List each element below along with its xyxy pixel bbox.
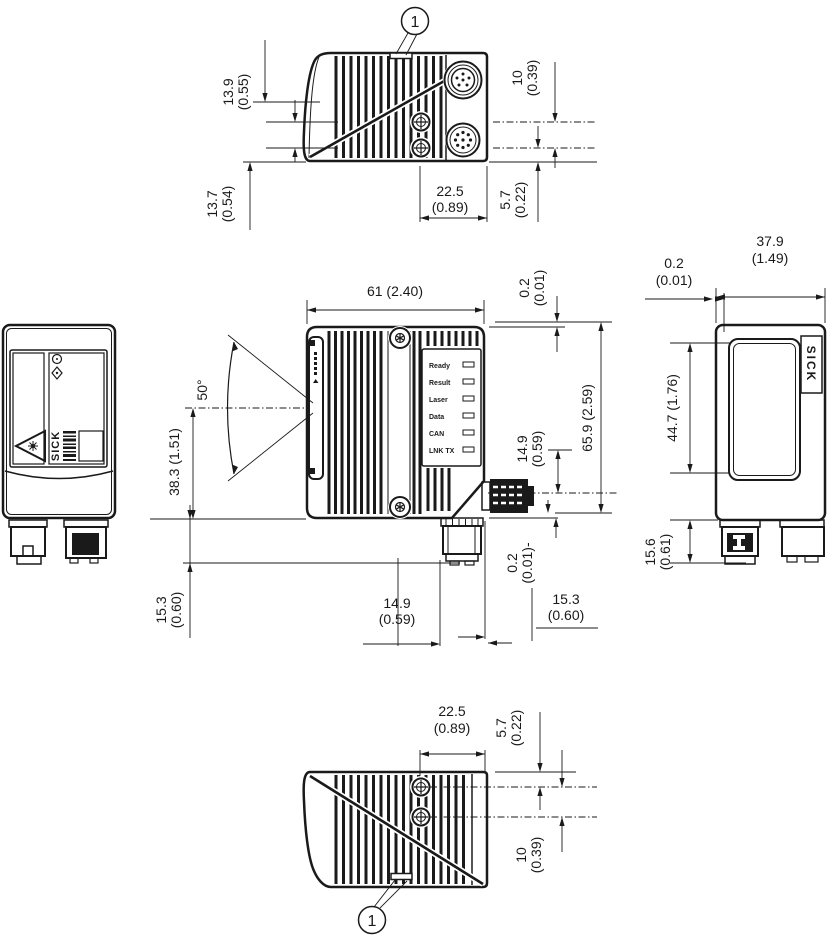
front-view-side-connector (482, 479, 534, 513)
dim-0-2-front-bottom-mm: 0.2 (504, 553, 520, 573)
dim-65-9-label: 65.9 (2.59) (579, 384, 595, 452)
dim-38-3-label: 38.3 (1.51) (166, 428, 182, 496)
dim-22-5-bottom-in: (0.89) (434, 720, 471, 736)
dim-13-7-mm: 13.7 (204, 190, 220, 217)
dim-14-9-right-in: (0.59) (529, 431, 545, 468)
dim-15-3-bottom-mm: 15.3 (552, 591, 579, 607)
dim-0-2-front-bottom-in: (0.01)- (519, 542, 535, 584)
dim-37-9-mm: 37.9 (756, 233, 783, 249)
top-view-connector-m12-female (445, 122, 481, 158)
right-view-window (729, 339, 800, 480)
dim-22-5-bottom-mm: 22.5 (438, 703, 465, 719)
left-view-connector-b (64, 520, 108, 563)
dim-14-9-right-mm: 14.9 (514, 435, 530, 462)
dim-15-3-left-in: (0.60) (168, 592, 184, 629)
bottom-view (304, 772, 487, 887)
bottom-view-mount-slot (391, 874, 412, 880)
dim-5-7-top-mm: 5.7 (497, 190, 513, 210)
led-label-laser: Laser (429, 397, 448, 404)
dim-10-bottom-mm: 10 (513, 847, 529, 863)
callout-1-top: 1 (396, 8, 429, 56)
dim-14-9-bottom-in: (0.59) (379, 611, 416, 627)
front-view-led-panel: Ready Result Laser Data CAN LNK TX (422, 349, 481, 466)
top-view-screw-upper (410, 111, 432, 133)
dim-0-2-front-top-mm: 0.2 (516, 278, 532, 298)
top-view-dimensions: 13.9 (0.55) 13.7 (0.54) 10 (0.39) 5.7 (0… (204, 40, 597, 230)
right-view-connector-a (720, 520, 760, 564)
laser-warning-icon (16, 431, 45, 461)
top-view-mount-slot (390, 53, 412, 59)
dim-10-top-mm: 10 (509, 70, 525, 86)
top-view-connector-m12-male (443, 60, 483, 100)
led-label-result: Result (429, 380, 451, 387)
dim-5-7-top-in: (0.22) (512, 182, 528, 219)
right-view-connector-b (780, 520, 824, 562)
dim-14-9-bottom-mm: 14.9 (383, 595, 410, 611)
dim-22-5-top-mm: 22.5 (436, 183, 463, 199)
bottom-view-screw-upper (410, 776, 432, 798)
certification-icons (52, 355, 62, 380)
dim-0-2-right-in: (0.01) (656, 272, 693, 288)
front-view-screw-top (388, 326, 412, 350)
dim-10-top-in: (0.39) (524, 60, 540, 97)
top-view (304, 53, 487, 161)
bottom-view-screw-lower (410, 806, 432, 828)
dim-15-6-mm: 15.6 (642, 538, 658, 565)
dim-22-5-top-in: (0.89) (432, 199, 469, 215)
front-view-screw-bottom (388, 495, 412, 519)
dimensional-drawing-page: 1 13.9 (0.55) 13.7 (0.54) 10 (0.39) 5.7 … (0, 0, 828, 940)
led-label-ready: Ready (429, 363, 450, 370)
sick-logo-left: SICK (50, 431, 62, 461)
dim-5-7-bottom-in: (0.22) (508, 710, 524, 747)
sick-logo-box: SICK (801, 336, 822, 393)
type-label: SICK (50, 431, 103, 461)
dim-50deg-label: 50° (194, 379, 210, 400)
window-strip-label (313, 352, 318, 383)
sick-logo-right: SICK (804, 346, 818, 383)
dim-15-3-left-mm: 15.3 (153, 596, 169, 623)
dim-10-bottom-in: (0.39) (528, 837, 544, 874)
front-view-window-strip (309, 337, 323, 479)
led-label-data: Data (429, 414, 444, 421)
callout-bottom-number: 1 (368, 913, 377, 930)
dim-37-9-in: (1.49) (752, 250, 789, 266)
left-view-connector-a (9, 520, 47, 564)
led-label-can: CAN (429, 431, 444, 438)
dim-15-3-bottom-in: (0.60) (548, 607, 585, 623)
front-view-heatsink-fins (329, 331, 420, 514)
dim-5-7-bottom-mm: 5.7 (493, 718, 509, 738)
left-side-view: SICK (3, 325, 115, 564)
right-side-view: SICK (716, 325, 825, 564)
dim-13-9-in: (0.55) (235, 74, 251, 111)
led-label-lnktx: LNK TX (429, 448, 455, 455)
dim-0-2-front-top-in: (0.01) (531, 270, 547, 307)
dim-15-6-in: (0.61) (657, 534, 673, 571)
dim-61-label: 61 (2.40) (367, 283, 423, 299)
bottom-view-dimensions: 22.5 (0.89) 5.7 (0.22) 10 (0.39) (420, 703, 597, 873)
barcode-icon (63, 431, 76, 461)
dim-0-2-right-mm: 0.2 (664, 255, 684, 271)
dim-13-9-mm: 13.9 (220, 78, 236, 105)
dim-44-7-label: 44.7 (1.76) (664, 374, 680, 442)
top-view-screw-lower (410, 137, 432, 159)
front-view-bottom-connector (441, 518, 483, 565)
dim-13-7-in: (0.54) (219, 186, 235, 223)
callout-top-number: 1 (411, 14, 420, 31)
front-view: Ready Result Laser Data CAN LNK TX (307, 326, 534, 565)
dimensional-drawing: 1 13.9 (0.55) 13.7 (0.54) 10 (0.39) 5.7 … (0, 0, 828, 940)
aperture-angle: 50° (185, 335, 313, 481)
